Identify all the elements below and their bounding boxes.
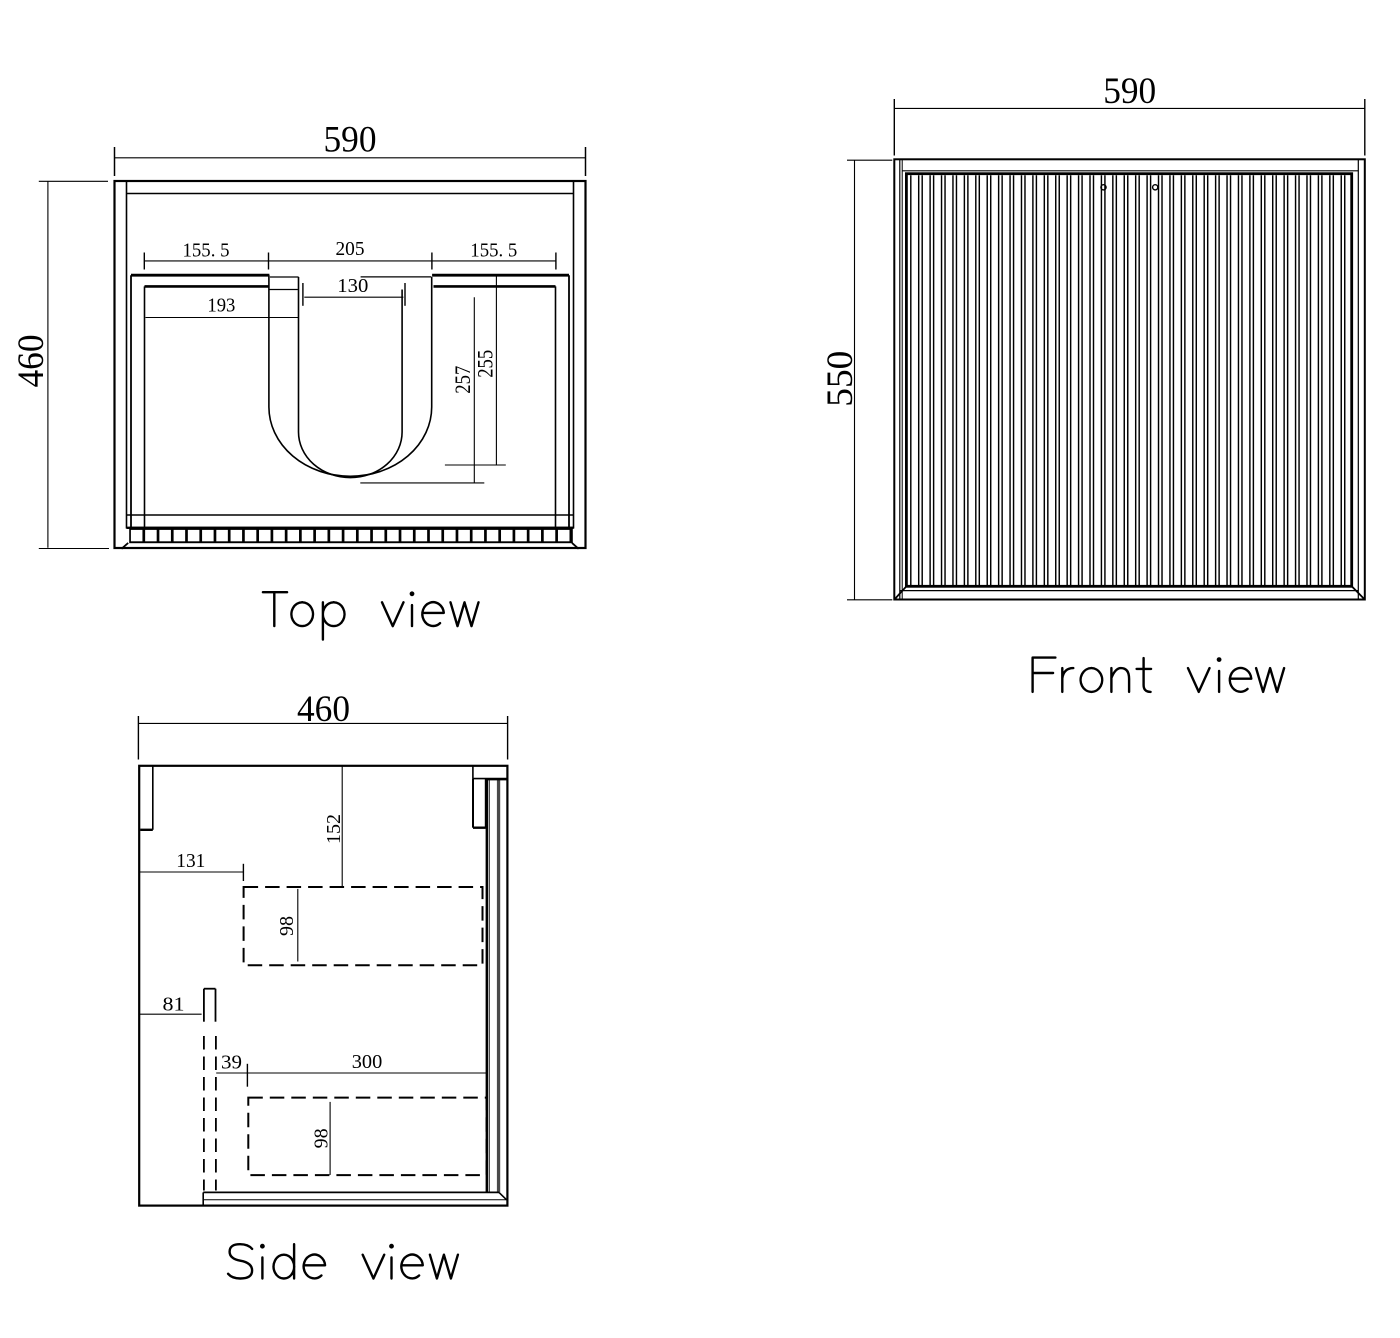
svg-text:550: 550: [820, 351, 861, 407]
svg-text:155. 5: 155. 5: [470, 240, 517, 262]
svg-text:590: 590: [324, 120, 377, 161]
svg-text:81: 81: [163, 994, 185, 1016]
svg-text:205: 205: [336, 238, 365, 260]
svg-text:255: 255: [473, 350, 498, 378]
svg-text:131: 131: [176, 850, 205, 872]
svg-text:590: 590: [1103, 71, 1156, 112]
svg-text:39: 39: [221, 1052, 242, 1074]
svg-text:193: 193: [207, 295, 235, 317]
svg-text:460: 460: [11, 335, 52, 388]
svg-text:98: 98: [310, 1128, 332, 1148]
svg-text:300: 300: [352, 1051, 383, 1073]
svg-text:257: 257: [450, 366, 475, 394]
svg-text:460: 460: [297, 689, 350, 730]
svg-text:155. 5: 155. 5: [183, 240, 230, 262]
svg-text:98: 98: [276, 916, 298, 936]
svg-text:152: 152: [323, 814, 345, 844]
svg-text:130: 130: [337, 275, 368, 297]
